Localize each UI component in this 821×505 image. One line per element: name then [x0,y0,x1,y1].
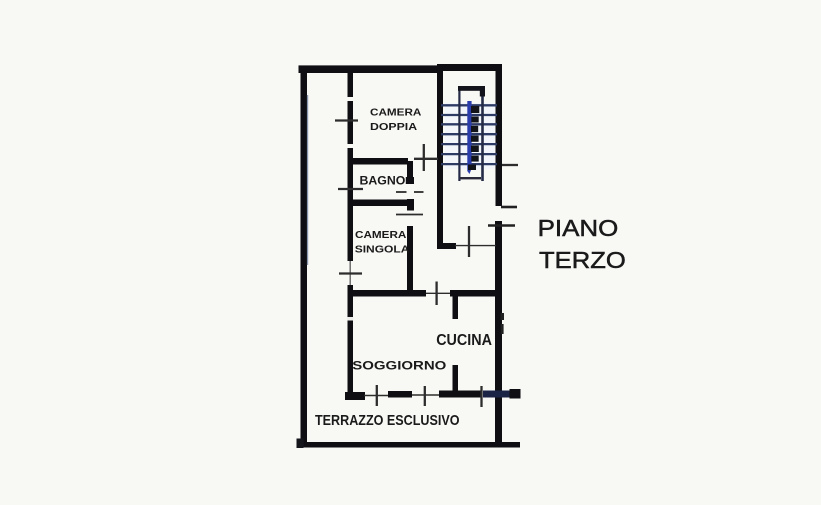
svg-text:PIANO: PIANO [538,216,619,242]
svg-text:BAGNO: BAGNO [360,173,406,187]
svg-text:CAMERA: CAMERA [355,230,407,241]
svg-text:CUCINA: CUCINA [436,332,492,350]
svg-text:SOGGIORNO: SOGGIORNO [352,359,446,372]
svg-text:CAMERA: CAMERA [370,107,422,118]
svg-text:TERZO: TERZO [539,248,626,274]
svg-text:TERRAZZO ESCLUSIVO: TERRAZZO ESCLUSIVO [315,412,460,428]
svg-text:SINGOLA: SINGOLA [355,244,410,255]
svg-text:DOPPIA: DOPPIA [370,122,417,133]
